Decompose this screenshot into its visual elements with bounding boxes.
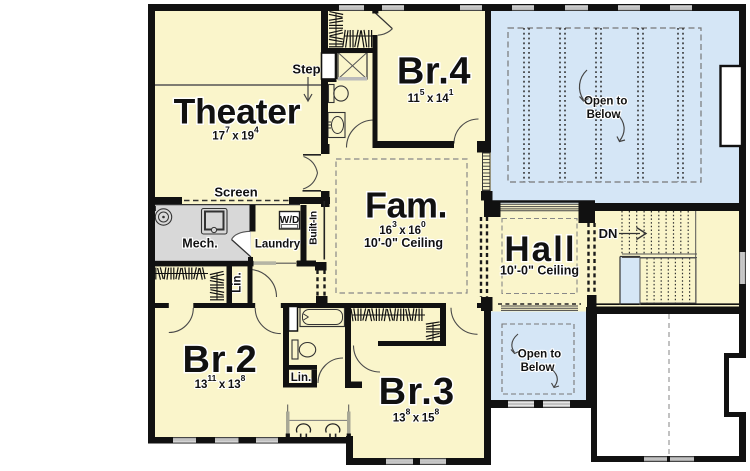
svg-text:Laundry: Laundry — [255, 239, 301, 251]
svg-text:Screen: Screen — [214, 185, 257, 200]
svg-text:Br.2: Br.2 — [182, 339, 257, 381]
svg-text:Fam.: Fam. — [365, 185, 447, 226]
svg-text:Lin.: Lin. — [291, 372, 311, 384]
svg-text:Below: Below — [587, 109, 621, 121]
svg-text:DN: DN — [599, 226, 618, 241]
svg-text:Below: Below — [521, 362, 555, 374]
svg-text:Mech.: Mech. — [182, 237, 217, 251]
svg-text:Built-In: Built-In — [308, 211, 320, 245]
svg-text:Br.3: Br.3 — [379, 371, 456, 413]
svg-text:Lin.: Lin. — [232, 272, 244, 292]
svg-text:Step: Step — [292, 62, 320, 77]
svg-text:Open to: Open to — [584, 96, 627, 108]
svg-text:10'-0" Ceiling: 10'-0" Ceiling — [500, 264, 579, 278]
svg-text:Theater: Theater — [174, 92, 301, 132]
svg-text:Open to: Open to — [518, 349, 561, 361]
svg-text:Br.4: Br.4 — [397, 51, 471, 93]
svg-text:10'-0" Ceiling: 10'-0" Ceiling — [364, 236, 443, 250]
